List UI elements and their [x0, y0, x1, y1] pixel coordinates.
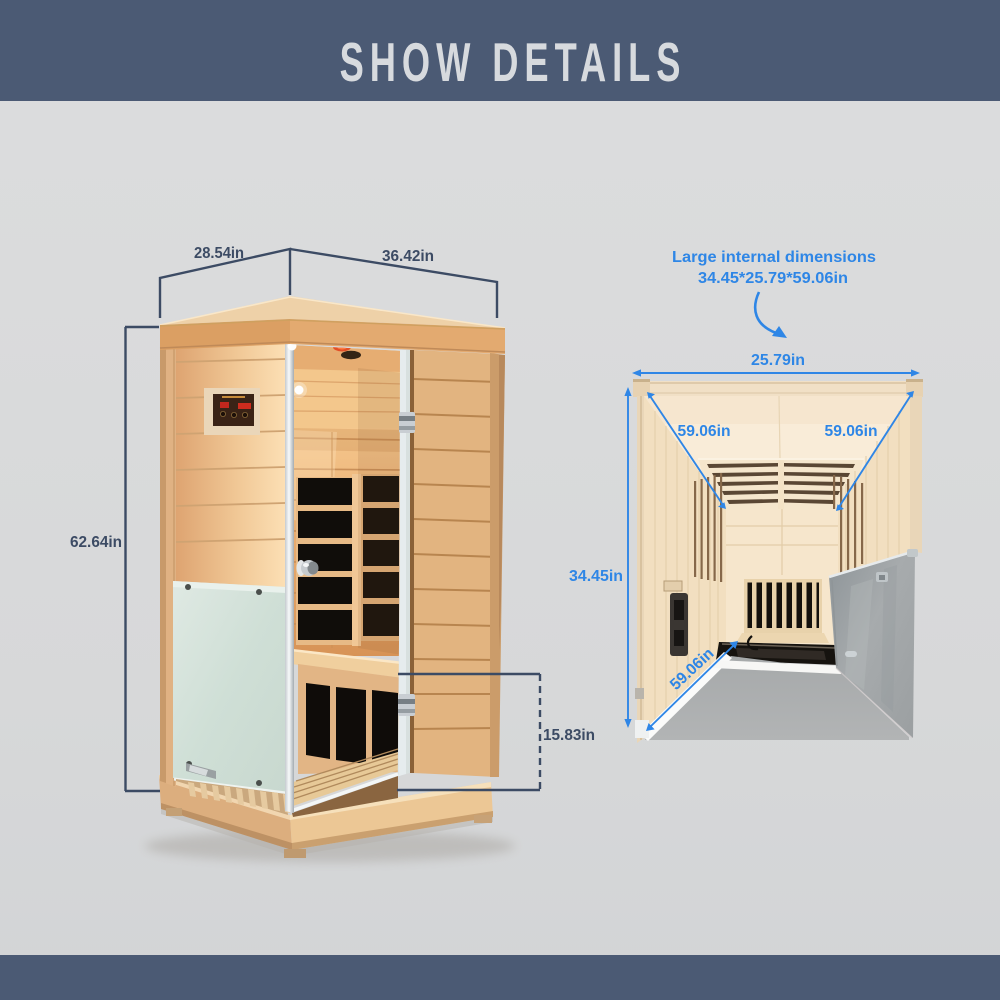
- svg-text:28.54in: 28.54in: [194, 245, 244, 262]
- svg-text:34.45*25.79*59.06in: 34.45*25.79*59.06in: [698, 270, 848, 287]
- svg-text:SHOW DETAILS: SHOW DETAILS: [340, 31, 687, 92]
- svg-text:Large internal dimensions: Large internal dimensions: [672, 249, 876, 266]
- svg-text:59.06in: 59.06in: [825, 423, 878, 440]
- svg-text:36.42in: 36.42in: [382, 248, 434, 265]
- svg-text:25.79in: 25.79in: [751, 352, 805, 369]
- svg-text:62.64in: 62.64in: [70, 534, 122, 551]
- svg-text:34.45in: 34.45in: [569, 568, 623, 585]
- svg-text:59.06in: 59.06in: [678, 423, 731, 440]
- svg-text:15.83in: 15.83in: [543, 727, 595, 744]
